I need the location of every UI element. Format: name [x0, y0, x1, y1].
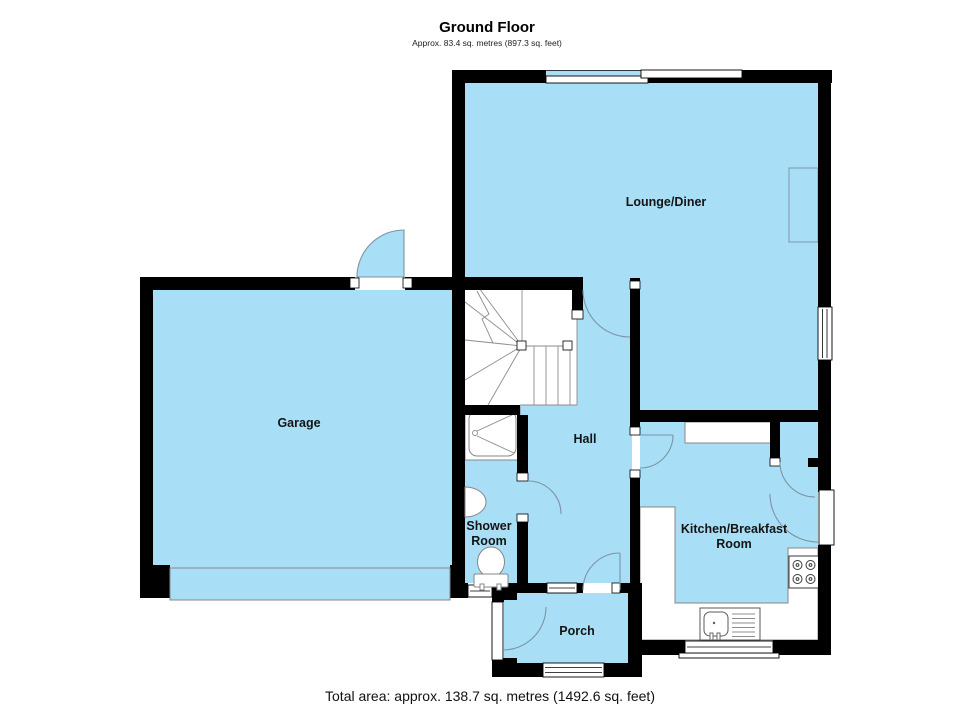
shower-label-2: Room [471, 534, 506, 548]
page-subtitle: Approx. 83.4 sq. metres (897.3 sq. feet) [412, 38, 562, 48]
stair-newel-post [517, 341, 526, 350]
stair-newel-post [563, 341, 572, 350]
kitchen-side-door-panel [819, 490, 834, 545]
kitchen-worktop [685, 422, 772, 443]
staircase [465, 288, 577, 405]
lounge-window-1 [546, 76, 648, 83]
kitchen-window [679, 641, 779, 658]
fireplace [789, 168, 818, 242]
porch-entrance-door-frame [492, 602, 503, 660]
hall-label: Hall [574, 432, 597, 446]
kitchen-label-1: Kitchen/Breakfast [681, 522, 788, 536]
garage-label: Garage [277, 416, 320, 430]
hall-porch-window [547, 583, 577, 593]
floor-plan-page: Lounge/Diner Garage Hall Shower Room Kit… [0, 0, 980, 712]
total-area: Total area: approx. 138.7 sq. metres (14… [325, 688, 655, 704]
shower-label-1: Shower [466, 519, 511, 533]
kitchen-sink [700, 608, 760, 640]
porch-window [543, 663, 604, 677]
garage-door [170, 568, 450, 600]
kitchen-label-2: Room [716, 537, 751, 551]
garage-floor [153, 290, 452, 585]
lounge-label: Lounge/Diner [626, 195, 707, 209]
kitchen-hob [789, 556, 819, 588]
lounge-window-2 [641, 70, 742, 78]
floor-plan: Lounge/Diner Garage Hall Shower Room Kit… [0, 0, 980, 712]
lounge-side-window [818, 307, 832, 360]
garage-side-door-swing [357, 230, 404, 277]
page-title: Ground Floor [439, 19, 535, 36]
porch-label: Porch [559, 624, 594, 638]
